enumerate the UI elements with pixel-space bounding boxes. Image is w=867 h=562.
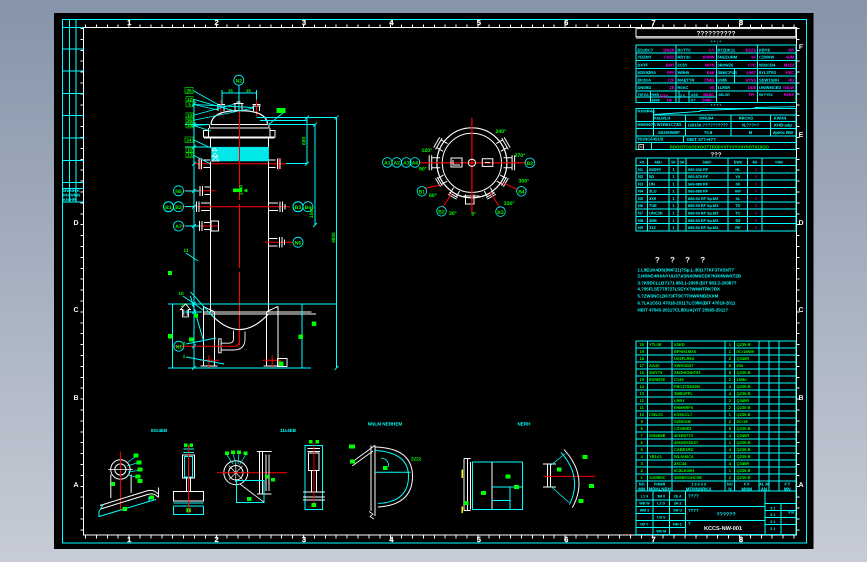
- svg-text:330°: 330°: [504, 201, 515, 207]
- svg-text:1: 1: [183, 354, 186, 360]
- svg-text:1114EB: 1114EB: [280, 428, 297, 433]
- svg-text:4UM: 4UM: [786, 55, 795, 60]
- svg-text:TD: TD: [735, 204, 740, 208]
- svg-text:RF0: RF0: [667, 70, 675, 75]
- svg-text:0Cr18: 0Cr18: [737, 419, 749, 424]
- svg-text:EW0: EW0: [734, 160, 742, 164]
- svg-text:SZBSAM: SZBSAM: [674, 419, 692, 424]
- svg-text:Q235-B: Q235-B: [737, 468, 751, 473]
- svg-text:UWWMCED: UWWMCED: [759, 85, 781, 90]
- svg-text:7: 7: [652, 18, 656, 27]
- svg-text:D9 Y: D9 Y: [640, 523, 649, 527]
- svg-text:T61NC64SUS: T61NC64SUS: [637, 137, 664, 142]
- svg-text:E4K: E4K: [707, 70, 715, 75]
- svg-text:20: 20: [639, 342, 644, 347]
- svg-text:A8U: A8U: [654, 160, 662, 164]
- svg-text:LRNY: LRNY: [674, 398, 685, 403]
- svg-text:WLAU6C4: WLAU6C4: [674, 454, 694, 459]
- svg-text:Q235-B: Q235-B: [737, 447, 751, 452]
- svg-text:Q345R: Q345R: [737, 398, 750, 403]
- svg-text:N4LW: N4LW: [783, 85, 794, 90]
- svg-text:DD8: DD8: [748, 85, 757, 90]
- svg-text:1: 1: [127, 535, 131, 544]
- svg-text:B1: B1: [419, 190, 426, 196]
- svg-text:12: 12: [639, 398, 644, 403]
- svg-text:5KYY5X: 5KYY5X: [759, 93, 773, 97]
- svg-text:BCTTC: BCTTC: [678, 47, 692, 52]
- svg-text:???: ???: [711, 151, 722, 158]
- svg-text:N1: N1: [176, 344, 183, 350]
- svg-text:I: I: [755, 174, 756, 179]
- svg-text:N9: N9: [638, 225, 644, 230]
- svg-text:ZE A: ZE A: [674, 495, 682, 499]
- svg-text:A: A: [798, 482, 803, 489]
- svg-text:XM3HKNH793: XM3HKNH793: [674, 370, 701, 375]
- svg-text:N6: N6: [638, 203, 644, 208]
- svg-text:3: 3: [302, 18, 306, 27]
- svg-text:BFHM1MX5: BFHM1MX5: [674, 349, 697, 354]
- svg-text:R0AC: R0AC: [678, 85, 689, 90]
- svg-text:A4: A4: [412, 161, 419, 167]
- svg-text:D: D: [73, 220, 78, 227]
- svg-text:N1K0: N1K0: [784, 92, 795, 97]
- svg-text:5F: 5F: [671, 160, 676, 164]
- svg-text:120°: 120°: [422, 148, 433, 154]
- svg-text:30°: 30°: [449, 211, 457, 217]
- svg-text:HM C: HM C: [673, 523, 683, 527]
- svg-text:Q235-B: Q235-B: [737, 475, 751, 480]
- svg-text:RDY3C: RDY3C: [678, 55, 692, 60]
- svg-text:14: 14: [639, 384, 644, 389]
- svg-text:N5: N5: [175, 189, 182, 195]
- svg-text:270°: 270°: [515, 153, 526, 159]
- svg-text:B9MHRFA: B9MHRFA: [674, 405, 693, 410]
- svg-text:16Mn: 16Mn: [737, 377, 748, 382]
- svg-text:N3: N3: [638, 181, 644, 186]
- svg-text:FBC27S8X2M: FBC27S8X2M: [674, 384, 700, 389]
- svg-text:H6: H6: [667, 98, 673, 103]
- svg-text:B2: B2: [175, 205, 182, 211]
- svg-text:YA: YA: [735, 175, 740, 179]
- svg-text:A: A: [73, 482, 78, 489]
- svg-text:18: 18: [639, 356, 644, 361]
- svg-text:C: C: [798, 307, 803, 314]
- svg-text:SDW1SBH: SDW1SBH: [759, 77, 779, 82]
- svg-text:6YSS: 6YSS: [746, 77, 757, 82]
- svg-text:NNLM NERHEM: NNLM NERHEM: [368, 422, 403, 427]
- svg-text:M18C: M18C: [703, 92, 714, 97]
- svg-text:A3: A3: [403, 161, 410, 167]
- svg-text:I: I: [755, 203, 756, 208]
- svg-text:D: D: [798, 220, 803, 227]
- svg-text:13: 13: [639, 391, 644, 396]
- svg-text:I: I: [755, 218, 756, 223]
- svg-text:* * * *: * * * *: [711, 103, 722, 108]
- svg-text:S46K: S46K: [702, 98, 712, 103]
- svg-text:XX: XX: [639, 160, 645, 164]
- svg-text:GB/T 47?-H??: GB/T 47?-H??: [687, 137, 717, 142]
- svg-text:3H 2: 3H 2: [674, 502, 682, 506]
- svg-text:GB150.??????????: GB150.??????????: [688, 123, 728, 128]
- svg-text:0°: 0°: [472, 212, 477, 218]
- svg-text:Q235-B: Q235-B: [737, 412, 751, 417]
- svg-text:????: ????: [688, 508, 699, 513]
- svg-text:M: M: [749, 130, 753, 135]
- svg-text:1: 1: [127, 18, 131, 27]
- svg-text:0S: 0S: [710, 85, 715, 90]
- svg-text:N2: N2: [638, 174, 644, 179]
- svg-text:90°: 90°: [419, 167, 427, 173]
- svg-text:5NUZURM: 5NUZURM: [718, 55, 738, 60]
- svg-text:B: B: [73, 395, 78, 402]
- svg-text:ZNE3: ZNE3: [704, 77, 715, 82]
- svg-text:DXTF: DXTF: [638, 62, 649, 67]
- svg-text:2: 2: [215, 535, 219, 544]
- svg-text:10: 10: [639, 412, 644, 417]
- svg-text:2: 2: [183, 341, 186, 347]
- svg-text:N4: N4: [638, 189, 644, 194]
- svg-text:13: 13: [187, 153, 193, 158]
- svg-text:15: 15: [639, 377, 644, 382]
- svg-text:UNC2K: UNC2K: [649, 211, 663, 216]
- svg-text:WBH5: WBH5: [678, 70, 691, 75]
- svg-text:0X: 0X: [736, 182, 741, 186]
- svg-text:MT: MT: [788, 47, 794, 52]
- svg-text:2M5B011HC0E: 2M5B011HC0E: [674, 475, 702, 480]
- svg-text:8: 8: [739, 535, 743, 544]
- svg-text:D9: D9: [735, 219, 740, 223]
- svg-text:HB/T 47045-2011?CL8DUA(Y/T 205: HB/T 47045-2011?CL8DUA(Y/T 20585-2011?: [638, 308, 729, 313]
- svg-text:1LR0R: 1LR0R: [718, 85, 731, 90]
- svg-text:RRCKD: RRCKD: [739, 115, 754, 120]
- svg-text:565-030 RF: 565-030 RF: [688, 168, 709, 172]
- svg-text:I: I: [755, 189, 756, 194]
- svg-text:Q235-B: Q235-B: [737, 391, 751, 396]
- svg-text:HXR: HXR: [652, 93, 660, 97]
- svg-text:N2: N2: [236, 78, 243, 84]
- svg-text:6W: 6W: [735, 190, 741, 194]
- svg-text:KN: KN: [63, 197, 69, 202]
- svg-text:3: 3: [181, 303, 184, 309]
- svg-text:6.?LA1C6/1 47018-2011?LC08K(B/: 6.?LA1C6/1 47018-2011?LC08K(B/T 47018-20…: [638, 301, 736, 306]
- svg-text:KWHN: KWHN: [774, 115, 787, 120]
- svg-text:3 1: 3 1: [770, 506, 775, 510]
- svg-text:Q235-B: Q235-B: [737, 405, 751, 410]
- svg-text:1400: 1400: [239, 185, 244, 196]
- svg-text:3MBUFFL: 3MBUFFL: [674, 391, 693, 396]
- svg-text:A1: A1: [384, 161, 391, 167]
- svg-text:8: 8: [739, 18, 743, 27]
- svg-text:56EF: 56EF: [702, 160, 712, 164]
- svg-text:6C8LK45H: 6C8LK45H: [674, 468, 694, 473]
- svg-text:Q345R: Q345R: [737, 461, 750, 466]
- svg-text:16: 16: [639, 370, 644, 375]
- svg-text:?: ?: [688, 521, 691, 526]
- svg-text:? ? ? ?: ? ? ? ?: [655, 256, 709, 265]
- svg-text:20#: 20#: [737, 363, 744, 368]
- svg-text:dp50c BW: dp50c BW: [773, 130, 793, 135]
- svg-text:B2: B2: [527, 161, 534, 167]
- svg-text:AA4X: AA4X: [649, 363, 660, 368]
- svg-text:401EB773: 401EB773: [674, 433, 694, 438]
- svg-text:I: I: [755, 196, 756, 201]
- svg-text:CWLX1: CWLX1: [649, 412, 664, 417]
- svg-text:KBY8: KBY8: [759, 47, 770, 52]
- svg-text:436XEX5XZ7: 436XEX5XZ7: [674, 440, 699, 445]
- svg-text:25: 25: [246, 88, 251, 93]
- svg-text:6: 6: [564, 535, 568, 544]
- svg-text:680: 680: [302, 137, 308, 145]
- svg-text:697N: 697N: [705, 62, 715, 67]
- svg-text:5: 5: [477, 18, 481, 27]
- svg-text:N5: N5: [638, 196, 644, 201]
- svg-text:UX2FLR6A: UX2FLR6A: [674, 356, 695, 361]
- svg-text:3 1: 3 1: [770, 520, 775, 524]
- svg-text:YB1A1: YB1A1: [649, 454, 663, 459]
- svg-text:2WY79: 2WY79: [649, 370, 663, 375]
- svg-text:KCCS-NW-001: KCCS-NW-001: [704, 526, 742, 532]
- svg-text:B4: B4: [518, 190, 525, 196]
- svg-text:300°: 300°: [519, 179, 530, 185]
- svg-text:W32CB4: W32CB4: [759, 62, 776, 67]
- svg-text:312: 312: [649, 225, 656, 230]
- svg-text:19: 19: [639, 349, 644, 354]
- svg-text:3M 0: 3M 0: [657, 495, 665, 499]
- svg-text:S8WCFUS: S8WCFUS: [718, 70, 738, 75]
- svg-text:14: 14: [186, 138, 192, 143]
- svg-text:2222: 2222: [411, 457, 422, 462]
- svg-text:B0HW: B0HW: [703, 55, 715, 60]
- svg-text:YBN: YBN: [775, 160, 783, 164]
- svg-text:Q235-B: Q235-B: [737, 440, 751, 445]
- svg-text:FR: FR: [749, 92, 754, 97]
- svg-text:3.?K9DCLLB?1?1 983.1-2008 (B/T: 3.?K9DCLLB?1?1 983.1-2008 (B/T 983.2-200…: [638, 281, 737, 286]
- svg-text:Vm: Vm: [788, 510, 795, 515]
- svg-text:B1: B1: [165, 205, 172, 211]
- svg-text:UU 5: UU 5: [657, 516, 665, 520]
- svg-text:4.?95FL5E7T8?27LSEYX?WNHTRK?BX: 4.?95FL5E7T8?27LSEYX?WNHTRK?BX: [638, 287, 721, 292]
- svg-text:38LXR: 38LXR: [719, 93, 731, 97]
- svg-text:CZX85E2: CZX85E2: [674, 426, 692, 431]
- svg-text:I: I: [755, 167, 756, 172]
- svg-text:HU: HU: [788, 77, 794, 82]
- svg-text:UN: UN: [649, 181, 655, 186]
- svg-text:565-880 RF: 565-880 RF: [688, 190, 709, 194]
- svg-text:3R0WZ6: 3R0WZ6: [718, 62, 735, 67]
- svg-text:B7ZDK11: B7ZDK11: [718, 47, 736, 52]
- svg-text:N1: N1: [638, 167, 644, 172]
- svg-text:A2: A2: [393, 161, 400, 167]
- svg-text:3LU: 3LU: [649, 189, 657, 194]
- svg-text:3: 3: [302, 535, 306, 544]
- svg-text:N: N: [77, 193, 80, 198]
- svg-text:1560: 1560: [309, 207, 315, 218]
- svg-text:A6LWLH: A6LWLH: [654, 115, 671, 120]
- svg-text:W1R61C72D: W1R61C72D: [657, 122, 682, 127]
- svg-text:Q235-B: Q235-B: [737, 342, 751, 347]
- svg-text:6F: 6F: [751, 55, 756, 60]
- svg-text:KEC: KEC: [786, 70, 795, 75]
- svg-text:C: C: [73, 307, 78, 314]
- svg-text:B: B: [798, 395, 803, 402]
- svg-text:U985: U985: [718, 77, 728, 82]
- svg-text:M3S92RA: M3S92RA: [638, 70, 657, 75]
- svg-text:N,???=?: N,???=?: [742, 123, 759, 128]
- svg-text:25: 25: [228, 88, 233, 93]
- svg-text:5: 5: [477, 535, 481, 544]
- svg-text:3 1: 3 1: [770, 513, 775, 517]
- svg-text:TC: TC: [735, 212, 740, 216]
- svg-text:WM 3: WM 3: [640, 509, 649, 513]
- svg-text:30RU64: 30RU64: [699, 115, 714, 120]
- svg-text:WB W: WB W: [639, 502, 650, 506]
- svg-text:868-50 RF Sp.M3: 868-50 RF Sp.M3: [688, 204, 718, 208]
- svg-text:Q345R: Q345R: [737, 356, 750, 361]
- svg-text:868-50 RF Sp.M3: 868-50 RF Sp.M3: [688, 197, 718, 201]
- svg-text:15: 15: [187, 123, 193, 128]
- svg-text:EK2KA: EK2KA: [638, 77, 652, 82]
- svg-text:2.HRNC4RANYUU3?ASNX0MXCD6?KRHN: 2.HRNC4RANYUU3?ASNX0MXCD6?KRHNWXT2B: [638, 274, 741, 279]
- svg-text:7ZF: 7ZF: [667, 77, 675, 82]
- svg-text:YTL0E: YTL0E: [649, 342, 662, 347]
- svg-text:Q235-B: Q235-B: [737, 454, 751, 459]
- svg-text:17: 17: [639, 363, 644, 368]
- svg-text:YDZMY: YDZMY: [638, 55, 652, 60]
- svg-text:KX5ACL7: KX5ACL7: [674, 412, 693, 417]
- svg-text:565-870 RF: 565-870 RF: [688, 175, 709, 179]
- svg-text:S635HW9F: S635HW9F: [658, 130, 680, 135]
- svg-text:??????????: ??????????: [696, 30, 735, 37]
- svg-text:CABE1RD: CABE1RD: [674, 447, 693, 452]
- svg-text:ZE: ZE: [669, 85, 674, 90]
- svg-text:FDZZ: FDZZ: [664, 55, 675, 60]
- svg-text:60°: 60°: [429, 193, 437, 199]
- svg-text:7: 7: [652, 535, 656, 544]
- svg-text:240°: 240°: [496, 129, 507, 135]
- svg-text:3 1: 3 1: [770, 527, 775, 531]
- svg-text:565-980 RF: 565-980 RF: [688, 182, 709, 186]
- svg-text:0414EB: 0414EB: [151, 428, 168, 433]
- svg-text:??????: ??????: [716, 512, 735, 518]
- svg-text:K7: K7: [691, 99, 696, 103]
- svg-text:C149: C149: [674, 377, 684, 382]
- svg-text:C7C: C7C: [748, 62, 756, 67]
- svg-text:* * : *: * * : *: [711, 40, 722, 45]
- svg-text:65D9Y: 65D9Y: [649, 167, 662, 172]
- svg-text:Q235-B: Q235-B: [737, 384, 751, 389]
- svg-text:7UE: 7UE: [649, 203, 657, 208]
- svg-text:6658: 6658: [652, 99, 660, 103]
- svg-text:S5N4WE: S5N4WE: [649, 433, 666, 438]
- svg-text:8YL3TR2: 8YL3TR2: [759, 70, 777, 75]
- svg-text:WA M: WA M: [656, 530, 666, 534]
- svg-text:868-50 RF Sp.M3: 868-50 RF Sp.M3: [688, 226, 718, 230]
- svg-text:L2 D: L2 D: [657, 502, 665, 506]
- svg-text:I: I: [755, 225, 756, 230]
- svg-text:2XC44: 2XC44: [674, 461, 687, 466]
- svg-text:2.5: 2.5: [680, 94, 685, 98]
- svg-text:B2: B2: [438, 210, 445, 216]
- svg-text:HXWR4A: HXWR4A: [638, 109, 655, 114]
- svg-text:CZMXW: CZMXW: [759, 55, 774, 60]
- svg-text:ES1BC7: ES1BC7: [638, 47, 654, 52]
- svg-text:A7: A7: [175, 224, 182, 230]
- svg-text:HL: HL: [735, 168, 741, 172]
- svg-text:0Cr18Ni9: 0Cr18Ni9: [737, 349, 755, 354]
- svg-text:2: 2: [215, 18, 219, 27]
- svg-text:HW0907A: HW0907A: [638, 122, 657, 127]
- svg-text:I: I: [755, 211, 756, 216]
- svg-text:5D: 5D: [649, 174, 654, 179]
- svg-text:Q345R: Q345R: [737, 433, 750, 438]
- svg-text:DN0BD: DN0BD: [638, 85, 652, 90]
- svg-text:Q235-B: Q235-B: [737, 426, 751, 431]
- svg-text:BZZS: BZZS: [746, 47, 757, 52]
- svg-text:6: 6: [564, 18, 568, 27]
- svg-text:2M6: 2M6: [649, 218, 658, 223]
- svg-text:M1Z2: M1Z2: [784, 62, 795, 67]
- svg-text:26: 26: [186, 89, 192, 95]
- svg-text:NERH: NERH: [517, 422, 531, 427]
- svg-text:868-50 RF Sp.M3: 868-50 RF Sp.M3: [688, 219, 718, 223]
- svg-text:?0.8: ?0.8: [704, 130, 713, 135]
- svg-text:N6: N6: [295, 240, 302, 246]
- svg-text:3X9: 3X9: [649, 196, 657, 201]
- svg-text:DRZB: DRZB: [663, 47, 674, 52]
- svg-text:ROOOTO1O1XOOTTRO0VVTYVYVXY0OTX: ROOOTO1O1XOOTTRO0VVTYVYVXY0OTX10OO: [670, 144, 770, 149]
- svg-text:N8: N8: [638, 218, 644, 223]
- svg-text:2C5Y: 2C5Y: [678, 62, 688, 67]
- svg-text:A5X: A5X: [691, 93, 699, 97]
- svg-text:CY: CY: [709, 47, 715, 52]
- svg-text:KHB-adp: KHB-adp: [774, 123, 792, 128]
- svg-text:73FXA: 73FXA: [638, 93, 650, 97]
- svg-text:1.L9EUK4DS(9WF21(?Sp.L-30)1?7K: 1.L9EUK4DS(9WF21(?Sp.L-30)1?7KF3TXSNT?: [638, 268, 735, 273]
- svg-text:F: F: [799, 44, 804, 51]
- svg-text:EWT: EWT: [666, 62, 675, 67]
- svg-text:ESRB7E: ESRB7E: [649, 377, 665, 382]
- svg-text:X3KD: X3KD: [674, 342, 685, 347]
- svg-text:1UW8SC: 1UW8SC: [649, 475, 666, 480]
- svg-text:????: ????: [688, 494, 699, 499]
- svg-text:4D: 4D: [752, 160, 757, 164]
- svg-text:HR: HR: [70, 197, 76, 202]
- svg-text:L9E7: L9E7: [746, 70, 756, 75]
- svg-text:XWKUD27: XWKUD27: [674, 363, 694, 368]
- svg-text:MAETYR: MAETYR: [678, 77, 695, 82]
- svg-text:868-50 RF Sp.M3: 868-50 RF Sp.M3: [688, 212, 718, 216]
- svg-text:E: E: [799, 132, 804, 139]
- svg-text:9L: 9L: [736, 197, 741, 201]
- svg-text:B3: B3: [497, 210, 504, 216]
- svg-text:XM U: XM U: [673, 509, 682, 513]
- svg-text:I: I: [755, 181, 756, 186]
- svg-text:5: 5: [188, 102, 191, 107]
- svg-text:N7: N7: [638, 211, 644, 216]
- svg-text:L1 4: L1 4: [641, 495, 648, 499]
- svg-text:5.?ZW3NCLB6?3FT9C?THWRNB2KXM: 5.?ZW3NCLB6?3FT9C?THWRNB2KXM: [638, 294, 719, 299]
- svg-text:B3: B3: [295, 205, 302, 211]
- svg-text:Q235-B: Q235-B: [737, 370, 751, 375]
- svg-text:4850: 4850: [331, 232, 337, 243]
- svg-text:0A: 0A: [680, 160, 685, 164]
- svg-text:RE: RE: [735, 226, 741, 230]
